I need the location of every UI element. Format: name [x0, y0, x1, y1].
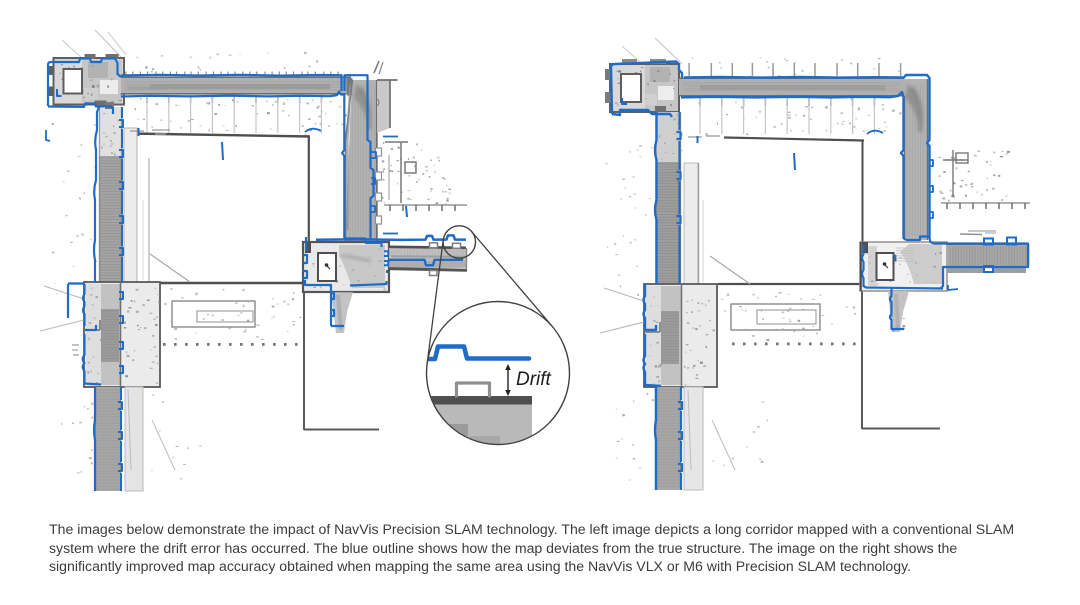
svg-text:Drift: Drift: [516, 369, 552, 390]
